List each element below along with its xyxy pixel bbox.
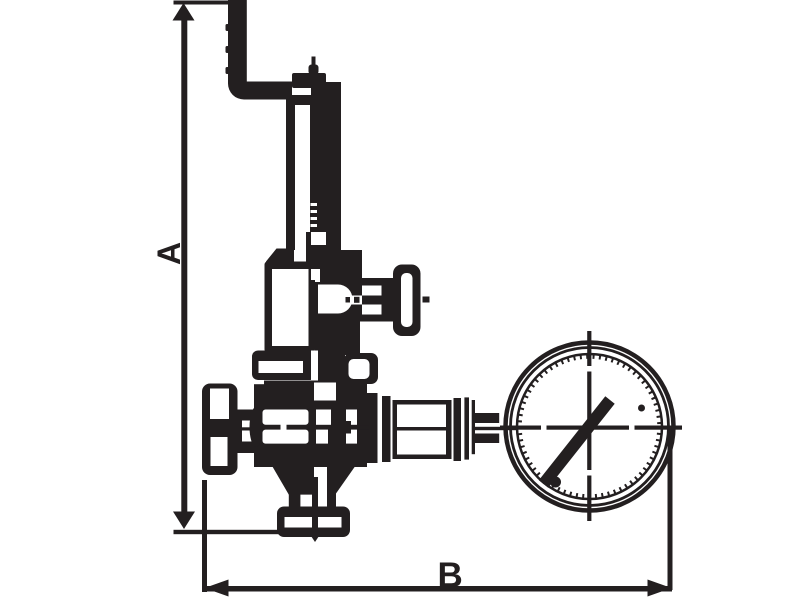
- svg-text:A: A: [151, 242, 187, 265]
- svg-text:B: B: [438, 556, 463, 595]
